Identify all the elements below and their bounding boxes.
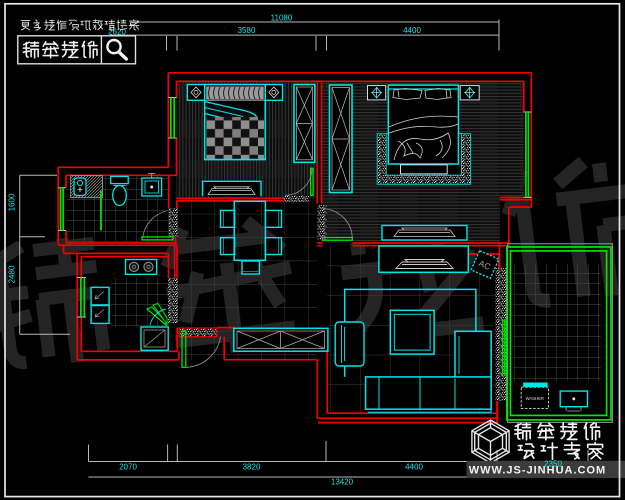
svg-text:13420: 13420 bbox=[331, 478, 354, 487]
svg-text:2350: 2350 bbox=[544, 460, 562, 469]
svg-text:11080: 11080 bbox=[271, 14, 293, 23]
svg-text:4400: 4400 bbox=[403, 26, 421, 35]
svg-text:WWW.JS-JINHUA.COM: WWW.JS-JINHUA.COM bbox=[469, 465, 606, 477]
svg-text:2480: 2480 bbox=[8, 265, 17, 283]
svg-text:3820: 3820 bbox=[243, 462, 261, 471]
svg-text:4400: 4400 bbox=[405, 462, 423, 471]
svg-text:1600: 1600 bbox=[8, 193, 17, 211]
svg-text:3580: 3580 bbox=[238, 26, 256, 35]
svg-text:2070: 2070 bbox=[119, 462, 137, 471]
svg-text:WASHER: WASHER bbox=[526, 396, 544, 401]
